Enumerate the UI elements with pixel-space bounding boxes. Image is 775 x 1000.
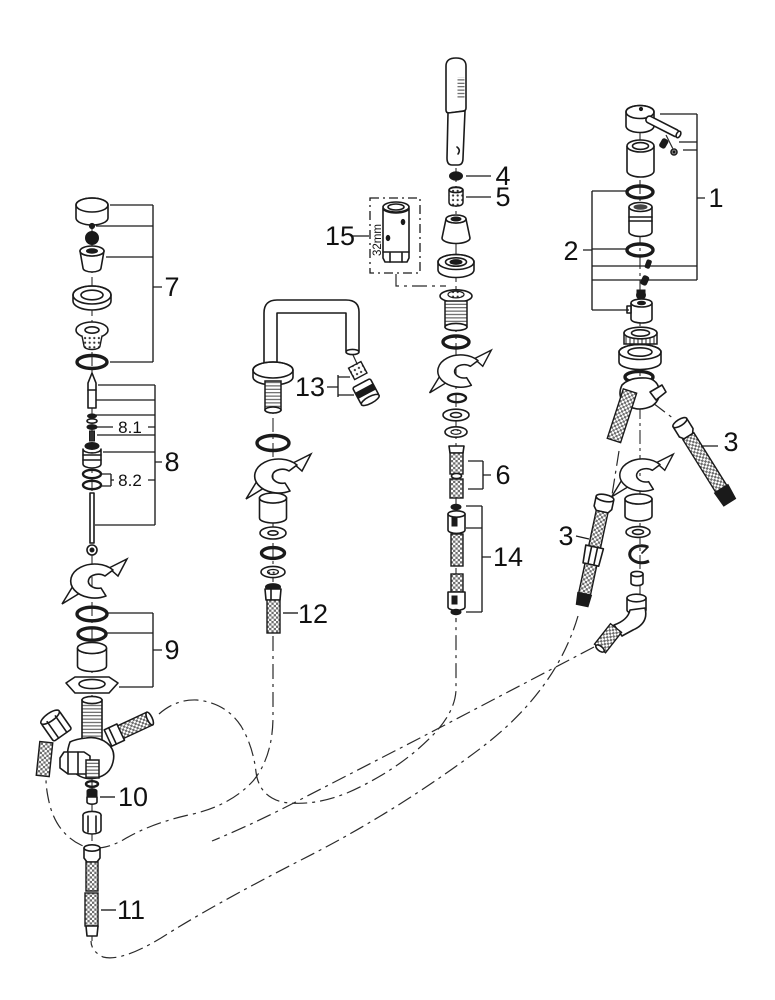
callout-11: 11 bbox=[117, 895, 145, 925]
callout-15: 15 bbox=[325, 221, 355, 251]
body-outlet bbox=[86, 760, 99, 778]
filter-5 bbox=[449, 187, 463, 206]
ball-joint bbox=[86, 232, 99, 245]
callout-1: 1 bbox=[708, 183, 723, 213]
escutcheon-flange bbox=[438, 255, 474, 278]
cone-adapter bbox=[442, 215, 470, 244]
flange-disc bbox=[73, 286, 111, 310]
callout-7: 7 bbox=[164, 272, 179, 302]
hose-12 bbox=[265, 584, 281, 633]
hose-11 bbox=[84, 845, 100, 936]
cone-bushing bbox=[80, 246, 104, 272]
elbow-hose-braid bbox=[36, 741, 52, 776]
spacer-sleeve bbox=[260, 493, 287, 523]
hose-6 bbox=[449, 446, 464, 498]
set-screw bbox=[89, 223, 94, 228]
callout-8: 8 bbox=[164, 447, 179, 477]
callout-10: 10 bbox=[118, 782, 148, 812]
callout-5: 5 bbox=[495, 182, 510, 212]
callout-3-right: 3 bbox=[723, 427, 738, 457]
callout-8-1: 8.1 bbox=[118, 418, 142, 437]
callout-14: 14 bbox=[493, 542, 523, 572]
knob-cap bbox=[76, 198, 108, 225]
threaded-shank bbox=[440, 290, 472, 331]
mounting-nut bbox=[66, 677, 118, 693]
washer bbox=[260, 527, 286, 539]
diagram-canvas: 32mm bbox=[0, 0, 775, 1000]
part-10-insert bbox=[87, 789, 97, 804]
cartridge-sleeve bbox=[629, 203, 652, 237]
spacer-sleeve bbox=[625, 494, 652, 521]
washer-4 bbox=[450, 172, 463, 180]
callout-6: 6 bbox=[495, 460, 510, 490]
callout-3-left: 3 bbox=[558, 521, 573, 551]
washer bbox=[626, 527, 650, 538]
callout-2: 2 bbox=[563, 236, 578, 266]
callout-13: 13 bbox=[295, 372, 325, 402]
small-nut bbox=[631, 571, 643, 585]
spacer-sleeve bbox=[78, 643, 107, 672]
hand-shower bbox=[446, 58, 466, 165]
handle-sleeve bbox=[627, 140, 654, 177]
page-background bbox=[0, 0, 775, 1000]
knurled-nut-washer bbox=[445, 427, 467, 437]
callout-8-2: 8.2 bbox=[118, 471, 142, 490]
coupling-nut bbox=[83, 811, 101, 834]
check-valve-assembly-14 bbox=[448, 504, 465, 615]
exploded-parts-diagram: 32mm bbox=[0, 0, 775, 1000]
pull-rod-top bbox=[88, 373, 96, 408]
knurled-washer bbox=[261, 566, 285, 577]
callout-9: 9 bbox=[164, 635, 179, 665]
spout-shank bbox=[265, 381, 281, 410]
tool-size-label: 32mm bbox=[372, 224, 384, 256]
callout-12: 12 bbox=[298, 599, 328, 629]
valve-piston bbox=[83, 443, 101, 469]
washer bbox=[443, 409, 469, 421]
